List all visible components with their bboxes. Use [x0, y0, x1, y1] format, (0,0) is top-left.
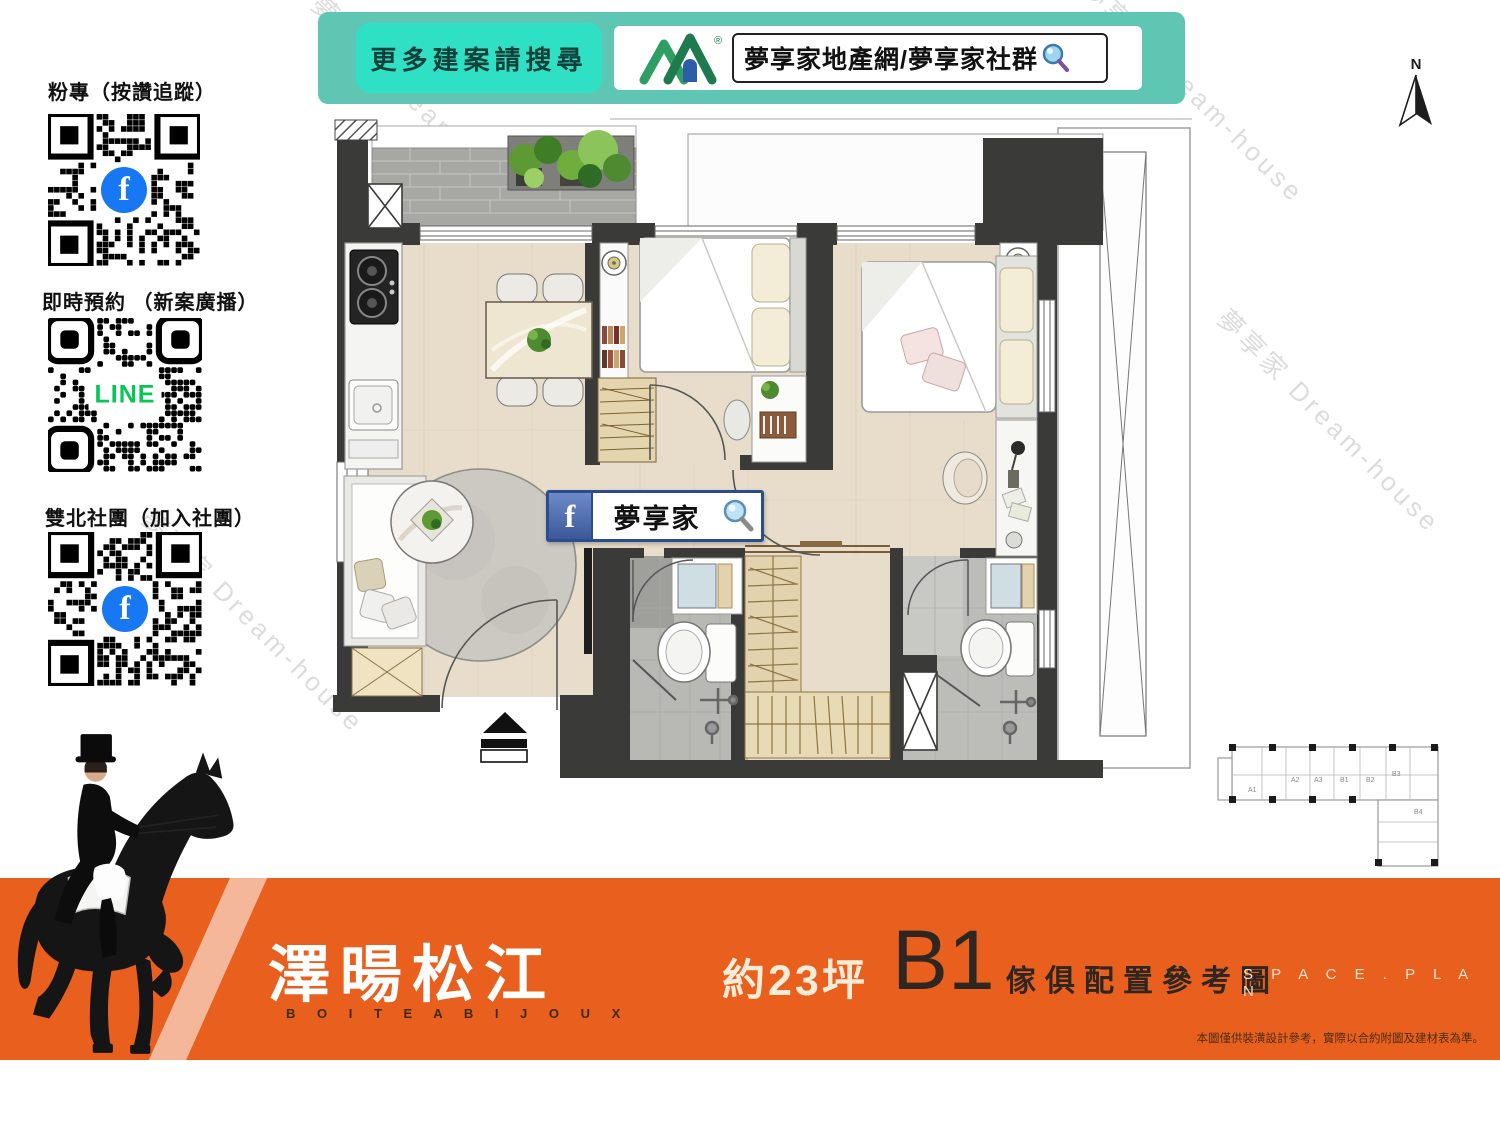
svg-text:A2: A2: [1291, 777, 1300, 784]
brand-search-box: ® 夢享家地產網/夢享家社群: [614, 26, 1142, 90]
facebook-icon: f: [101, 167, 147, 213]
svg-text:B3: B3: [1392, 771, 1401, 778]
unit-area: 約23坪: [722, 946, 868, 1008]
qr-section-label-booking: 即時預約 （新案廣播）: [42, 286, 259, 315]
kitchen: [345, 243, 402, 469]
svg-text:B4: B4: [1414, 809, 1423, 816]
project-title: 澤暘松江: [268, 924, 556, 1014]
unit-type: B1: [892, 912, 995, 1009]
entry-symbol-icon: [481, 712, 527, 762]
magnifier-icon: [721, 498, 755, 534]
planter-plants-icon: [508, 130, 634, 190]
svg-text:A1: A1: [1248, 787, 1257, 794]
dressage-horse-image: [0, 726, 244, 1060]
qr-section-label-fans: 粉專（按讚追蹤）: [48, 76, 216, 105]
facebook-icon: f: [102, 586, 148, 632]
storage-bench: [352, 648, 422, 696]
side-table: [391, 481, 473, 563]
svg-text:®: ®: [714, 35, 722, 47]
tv-icon: [584, 548, 592, 654]
svg-text:A3: A3: [1314, 777, 1323, 784]
qr-section-label-group: 雙北社團（加入社團）: [45, 502, 255, 531]
search-banner: 更多建案請搜尋 ® 夢享家地產網/夢享家社群: [318, 12, 1185, 104]
stove-icon: [350, 250, 398, 324]
toilet-icon: [961, 620, 1034, 676]
qr-code-line: LINE: [48, 318, 202, 472]
north-indicator: N: [1392, 56, 1440, 134]
floor-plan: [330, 108, 1200, 788]
watermark: 夢享家 Dream-house: [1210, 300, 1450, 540]
sink-icon: [349, 380, 398, 430]
magnifier-icon: [1040, 42, 1070, 74]
brand-name: 夢享家地產網/夢享家社群: [744, 40, 1038, 76]
brand-search-field: 夢享家地產網/夢享家社群: [732, 33, 1108, 83]
facebook-icon: f: [549, 493, 593, 539]
svg-text:B1: B1: [1340, 777, 1349, 784]
north-label: N: [1392, 56, 1440, 73]
north-arrow-icon: [1396, 73, 1436, 129]
plan-caption: 傢俱配置參考圖: [1006, 956, 1279, 1000]
dresser: [598, 378, 656, 462]
qr-code-facebook-page: f: [48, 114, 200, 266]
svg-text:B2: B2: [1366, 777, 1375, 784]
dream-house-logo-icon: ®: [638, 30, 724, 86]
toilet-icon: [658, 622, 736, 682]
plan-caption-en: S P A C E . P L A N: [1243, 966, 1500, 1000]
qr-code-facebook-group: f: [48, 532, 202, 686]
balcony: [372, 126, 636, 228]
search-prompt: 更多建案請搜尋: [356, 23, 602, 93]
project-subtitle: B O I T E A B I J O U X: [286, 1006, 629, 1021]
key-plan: A1 A2 A3 B1 B2 B3 B4: [1200, 735, 1450, 875]
disclaimer-text: 本圖僅供裝潢設計參考，實際以合約附圖及建材表為準。: [1197, 1030, 1485, 1046]
line-icon: LINE: [89, 380, 162, 411]
facebook-search-text: 夢享家: [593, 497, 721, 536]
facebook-search-bar: f 夢享家: [546, 490, 764, 542]
